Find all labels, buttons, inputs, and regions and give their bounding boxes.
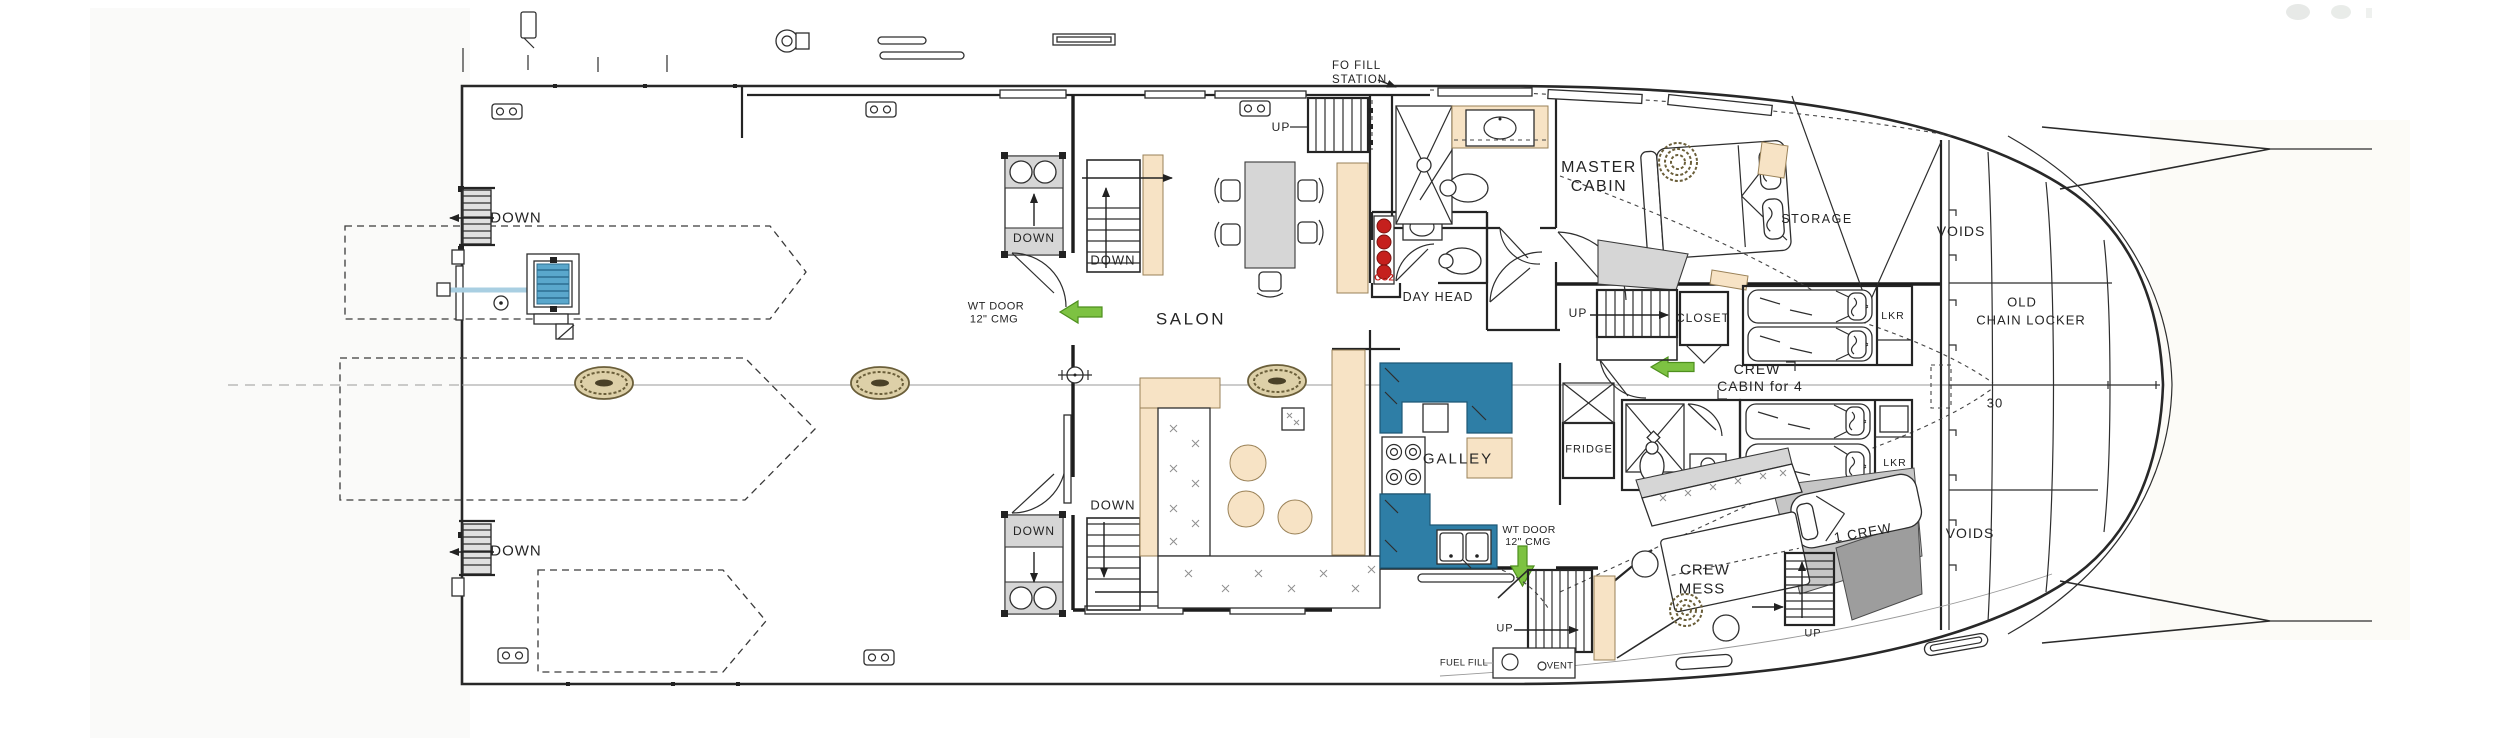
label-vent: VENT xyxy=(1547,661,1574,671)
label-day-head: DAY HEAD xyxy=(1403,291,1474,304)
label-crew-cabin-2: CABIN for 4 xyxy=(1717,379,1803,393)
label-up-dining: UP xyxy=(1272,121,1291,133)
label-crew-mess-1: CREW xyxy=(1680,563,1730,578)
label-closet: CLOSET xyxy=(1676,312,1730,324)
plan-linework xyxy=(0,0,2500,750)
label-down-vestibule-top: DOWN xyxy=(1013,232,1055,244)
label-down-salon-top: DOWN xyxy=(1090,254,1135,267)
label-up-crew-mid: UP xyxy=(1569,307,1588,319)
label-down-aft-bottom: DOWN xyxy=(490,544,542,559)
deck-plan: DOWN DOWN DOWN DOWN DOWN DOWN WT DOOR 12… xyxy=(0,0,2500,750)
label-fridge: FRIDGE xyxy=(1565,445,1613,456)
label-fo-fill-1: FO FILL xyxy=(1332,61,1381,73)
label-galley: GALLEY xyxy=(1423,452,1493,467)
label-crew-mess-2: MESS xyxy=(1679,582,1726,597)
label-station-30: 30 xyxy=(1987,397,2003,410)
label-wt-door-top-2: 12" CMG xyxy=(970,315,1018,326)
label-storage: STORAGE xyxy=(1781,213,1852,226)
label-up-center: UP xyxy=(1496,624,1513,635)
label-fo-fill-2: STATION xyxy=(1332,75,1387,87)
label-voids-top: VOIDS xyxy=(1937,224,1986,238)
label-crew-cabin-1: CREW xyxy=(1734,362,1781,376)
label-master-cabin-1: MASTER xyxy=(1561,160,1637,176)
label-voids-bottom: VOIDS xyxy=(1946,526,1995,540)
label-wt-door-bottom-2: 12" CMG xyxy=(1505,537,1551,548)
label-fuel-fill: FUEL FILL xyxy=(1440,658,1488,668)
label-salon: SALON xyxy=(1156,311,1226,328)
label-down-salon-bottom: DOWN xyxy=(1090,499,1135,512)
label-down-vestibule-bottom: DOWN xyxy=(1013,525,1055,537)
label-old-chain-locker-2: CHAIN LOCKER xyxy=(1976,314,2086,327)
label-wt-door-bottom-1: WT DOOR xyxy=(1502,525,1555,536)
label-down-aft-top: DOWN xyxy=(490,211,542,226)
label-old-chain-locker-1: OLD xyxy=(2007,296,2037,309)
label-lkr-top: LKR xyxy=(1881,311,1904,322)
label-wt-door-top-1: WT DOOR xyxy=(968,302,1024,313)
label-co2: CO2 xyxy=(1374,273,1394,283)
label-up-crew-aft: UP xyxy=(1804,629,1821,640)
label-master-cabin-2: CABIN xyxy=(1571,179,1627,195)
label-lkr-bottom: LKR xyxy=(1883,458,1906,469)
